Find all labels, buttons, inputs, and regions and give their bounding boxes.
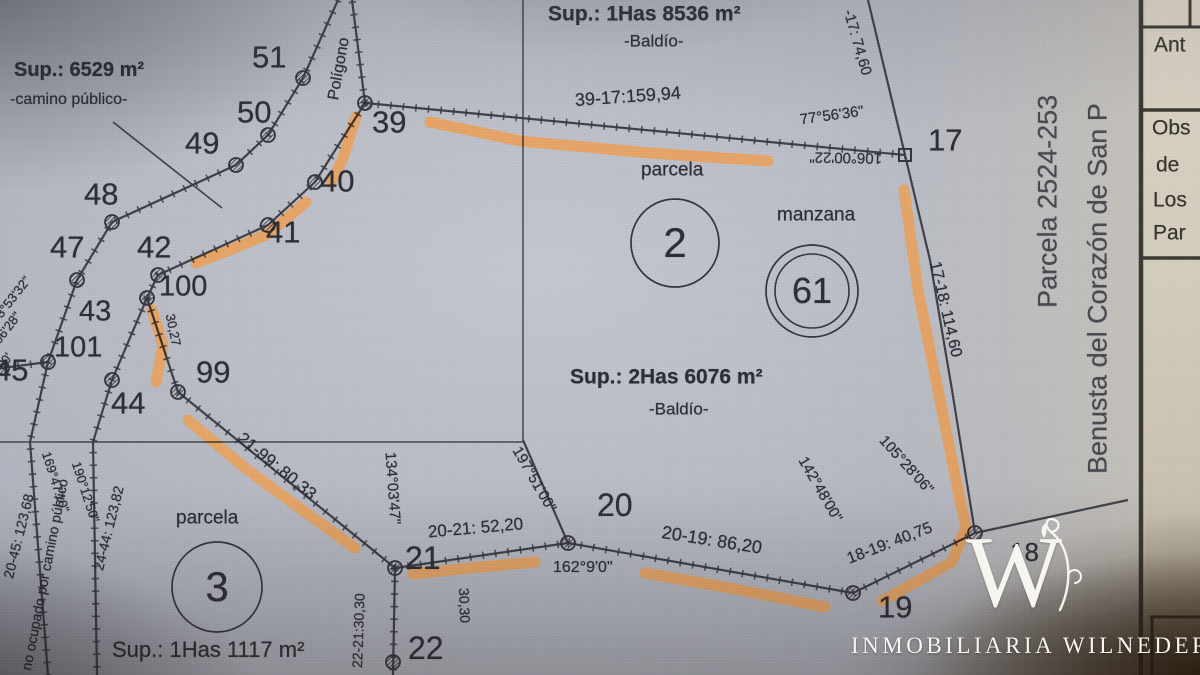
vertex-label-48: 48	[84, 179, 118, 210]
parcel-number: 2	[663, 222, 686, 264]
vertex-label-51: 51	[252, 42, 286, 73]
vertex-marker	[70, 273, 84, 287]
side-text-benusta: Benusta del Corazón de San P	[1085, 103, 1112, 474]
boundary-line	[868, 0, 905, 155]
vertex-marker	[296, 71, 310, 85]
swan-flourish-icon	[1038, 514, 1090, 614]
vertex-marker	[229, 158, 243, 172]
panel-row-los: Los	[1153, 190, 1187, 211]
watermark-brand: INMOBILIARIA WILNEDER	[851, 633, 1200, 659]
map-label: -Baldío-	[649, 401, 709, 418]
side-text-parcela: Parcela 2524-253	[1035, 95, 1062, 308]
vertex-label-41: 41	[266, 217, 300, 248]
vertex-label-20: 20	[597, 489, 633, 521]
parcela-3-caption: parcela	[176, 509, 238, 528]
parcel-number: 61	[792, 273, 832, 309]
vertex-marker	[386, 655, 400, 669]
vertex-marker	[261, 128, 275, 142]
distance-22-21: 22-21:30,30	[350, 593, 367, 668]
vertex-label-17: 17	[928, 125, 962, 156]
vertex-marker	[41, 355, 55, 369]
panel-row-obs: Obs	[1152, 118, 1191, 139]
boundary-line-ticks	[147, 103, 365, 298]
vertex-label-39: 39	[372, 107, 406, 138]
map-label: 106°00'22"	[809, 149, 882, 165]
vertex-marker	[171, 385, 185, 399]
vertex-label-43: 43	[79, 298, 111, 327]
vertex-marker	[388, 561, 402, 575]
vertex-label-19: 19	[878, 592, 912, 623]
vertex-marker	[561, 536, 575, 550]
map-label: 162°9'0"	[553, 560, 613, 576]
panel-row-par: Par	[1153, 223, 1186, 244]
highlighter-stroke	[430, 122, 768, 161]
highlighter-stroke	[152, 310, 163, 382]
vertex-marker	[846, 586, 860, 600]
highlighter-stroke	[188, 420, 355, 548]
area-label-parcel2: Sup.: 2Has 6076 m²	[570, 367, 763, 388]
boundary-line	[147, 103, 365, 298]
highlighter-stroke	[645, 573, 825, 607]
panel-row-de: de	[1156, 155, 1179, 176]
vertex-label-99: 99	[196, 357, 230, 388]
parcel-number: 3	[205, 566, 228, 608]
vertex-label-101: 101	[54, 334, 102, 363]
vertex-label-21: 21	[405, 542, 441, 574]
vertex-label-100: 100	[159, 273, 207, 302]
vertex-label-40: 40	[320, 166, 354, 197]
area-label-parcel3: Sup.: 1Has 1117 m²	[112, 639, 304, 661]
vertex-label-47: 47	[50, 232, 84, 263]
cadastral-map-photo: Ant Obs de Los Par 2613Sup.: 6529 m²-cam…	[0, 0, 1200, 675]
area-sublabel-camino: -camino público-	[10, 92, 127, 108]
boundary-line	[352, 0, 365, 103]
vertex-label-49: 49	[185, 128, 219, 159]
vertex-label-42: 42	[137, 232, 171, 263]
manzana-caption: manzana	[777, 206, 855, 225]
vertex-label-22: 22	[408, 632, 444, 664]
vertex-marker	[358, 96, 372, 110]
panel-row-ant: Ant	[1154, 35, 1186, 56]
vertex-marker	[140, 291, 154, 305]
map-label: -Baldío-	[624, 33, 684, 50]
area-label-camino: Sup.: 6529 m²	[14, 60, 144, 80]
vertex-marker	[105, 215, 119, 229]
parcela-2-caption: parcela	[641, 161, 703, 180]
vertex-label-44: 44	[111, 388, 145, 419]
area-label-top-parcel: Sup.: 1Has 8536 m²	[548, 4, 741, 25]
map-label: 30,30	[457, 588, 472, 624]
vertex-label-50: 50	[237, 97, 271, 128]
